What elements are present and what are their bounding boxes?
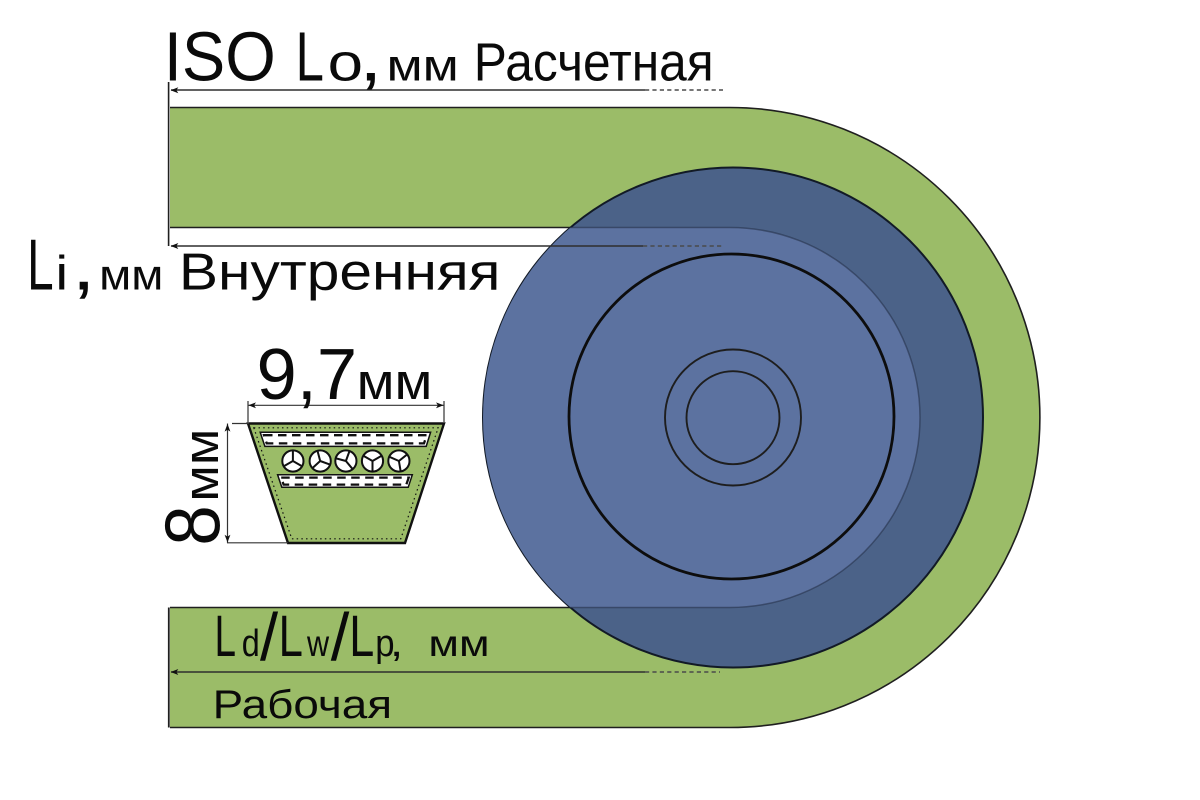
svg-text:L: L bbox=[349, 604, 374, 669]
svg-text:L: L bbox=[296, 18, 324, 96]
svg-text:мм: мм bbox=[428, 622, 489, 664]
svg-text:8: 8 bbox=[148, 505, 236, 546]
svg-text:мм: мм bbox=[99, 252, 163, 300]
svg-text:/: / bbox=[331, 600, 350, 675]
svg-text:,: , bbox=[359, 18, 382, 96]
svg-text:мм: мм bbox=[387, 42, 459, 91]
svg-text:o: o bbox=[328, 34, 363, 93]
svg-text:w: w bbox=[306, 622, 330, 664]
svg-text:i: i bbox=[55, 248, 68, 301]
svg-text:L: L bbox=[279, 604, 303, 669]
svg-text:мм: мм bbox=[175, 429, 229, 502]
svg-text:мм: мм bbox=[357, 353, 433, 410]
svg-text:,: , bbox=[72, 226, 96, 306]
svg-text:L: L bbox=[27, 225, 53, 306]
svg-text:d: d bbox=[242, 623, 260, 665]
svg-text:Рабочая: Рабочая bbox=[213, 683, 393, 727]
svg-text:ISO: ISO bbox=[164, 18, 276, 96]
svg-text:Расчетная: Расчетная bbox=[474, 34, 714, 93]
svg-text:L: L bbox=[215, 604, 237, 669]
svg-text:Внутренняя: Внутренняя bbox=[179, 243, 501, 301]
svg-text:9,7: 9,7 bbox=[257, 335, 358, 415]
svg-text:,: , bbox=[390, 621, 403, 665]
svg-text:/: / bbox=[260, 600, 278, 675]
